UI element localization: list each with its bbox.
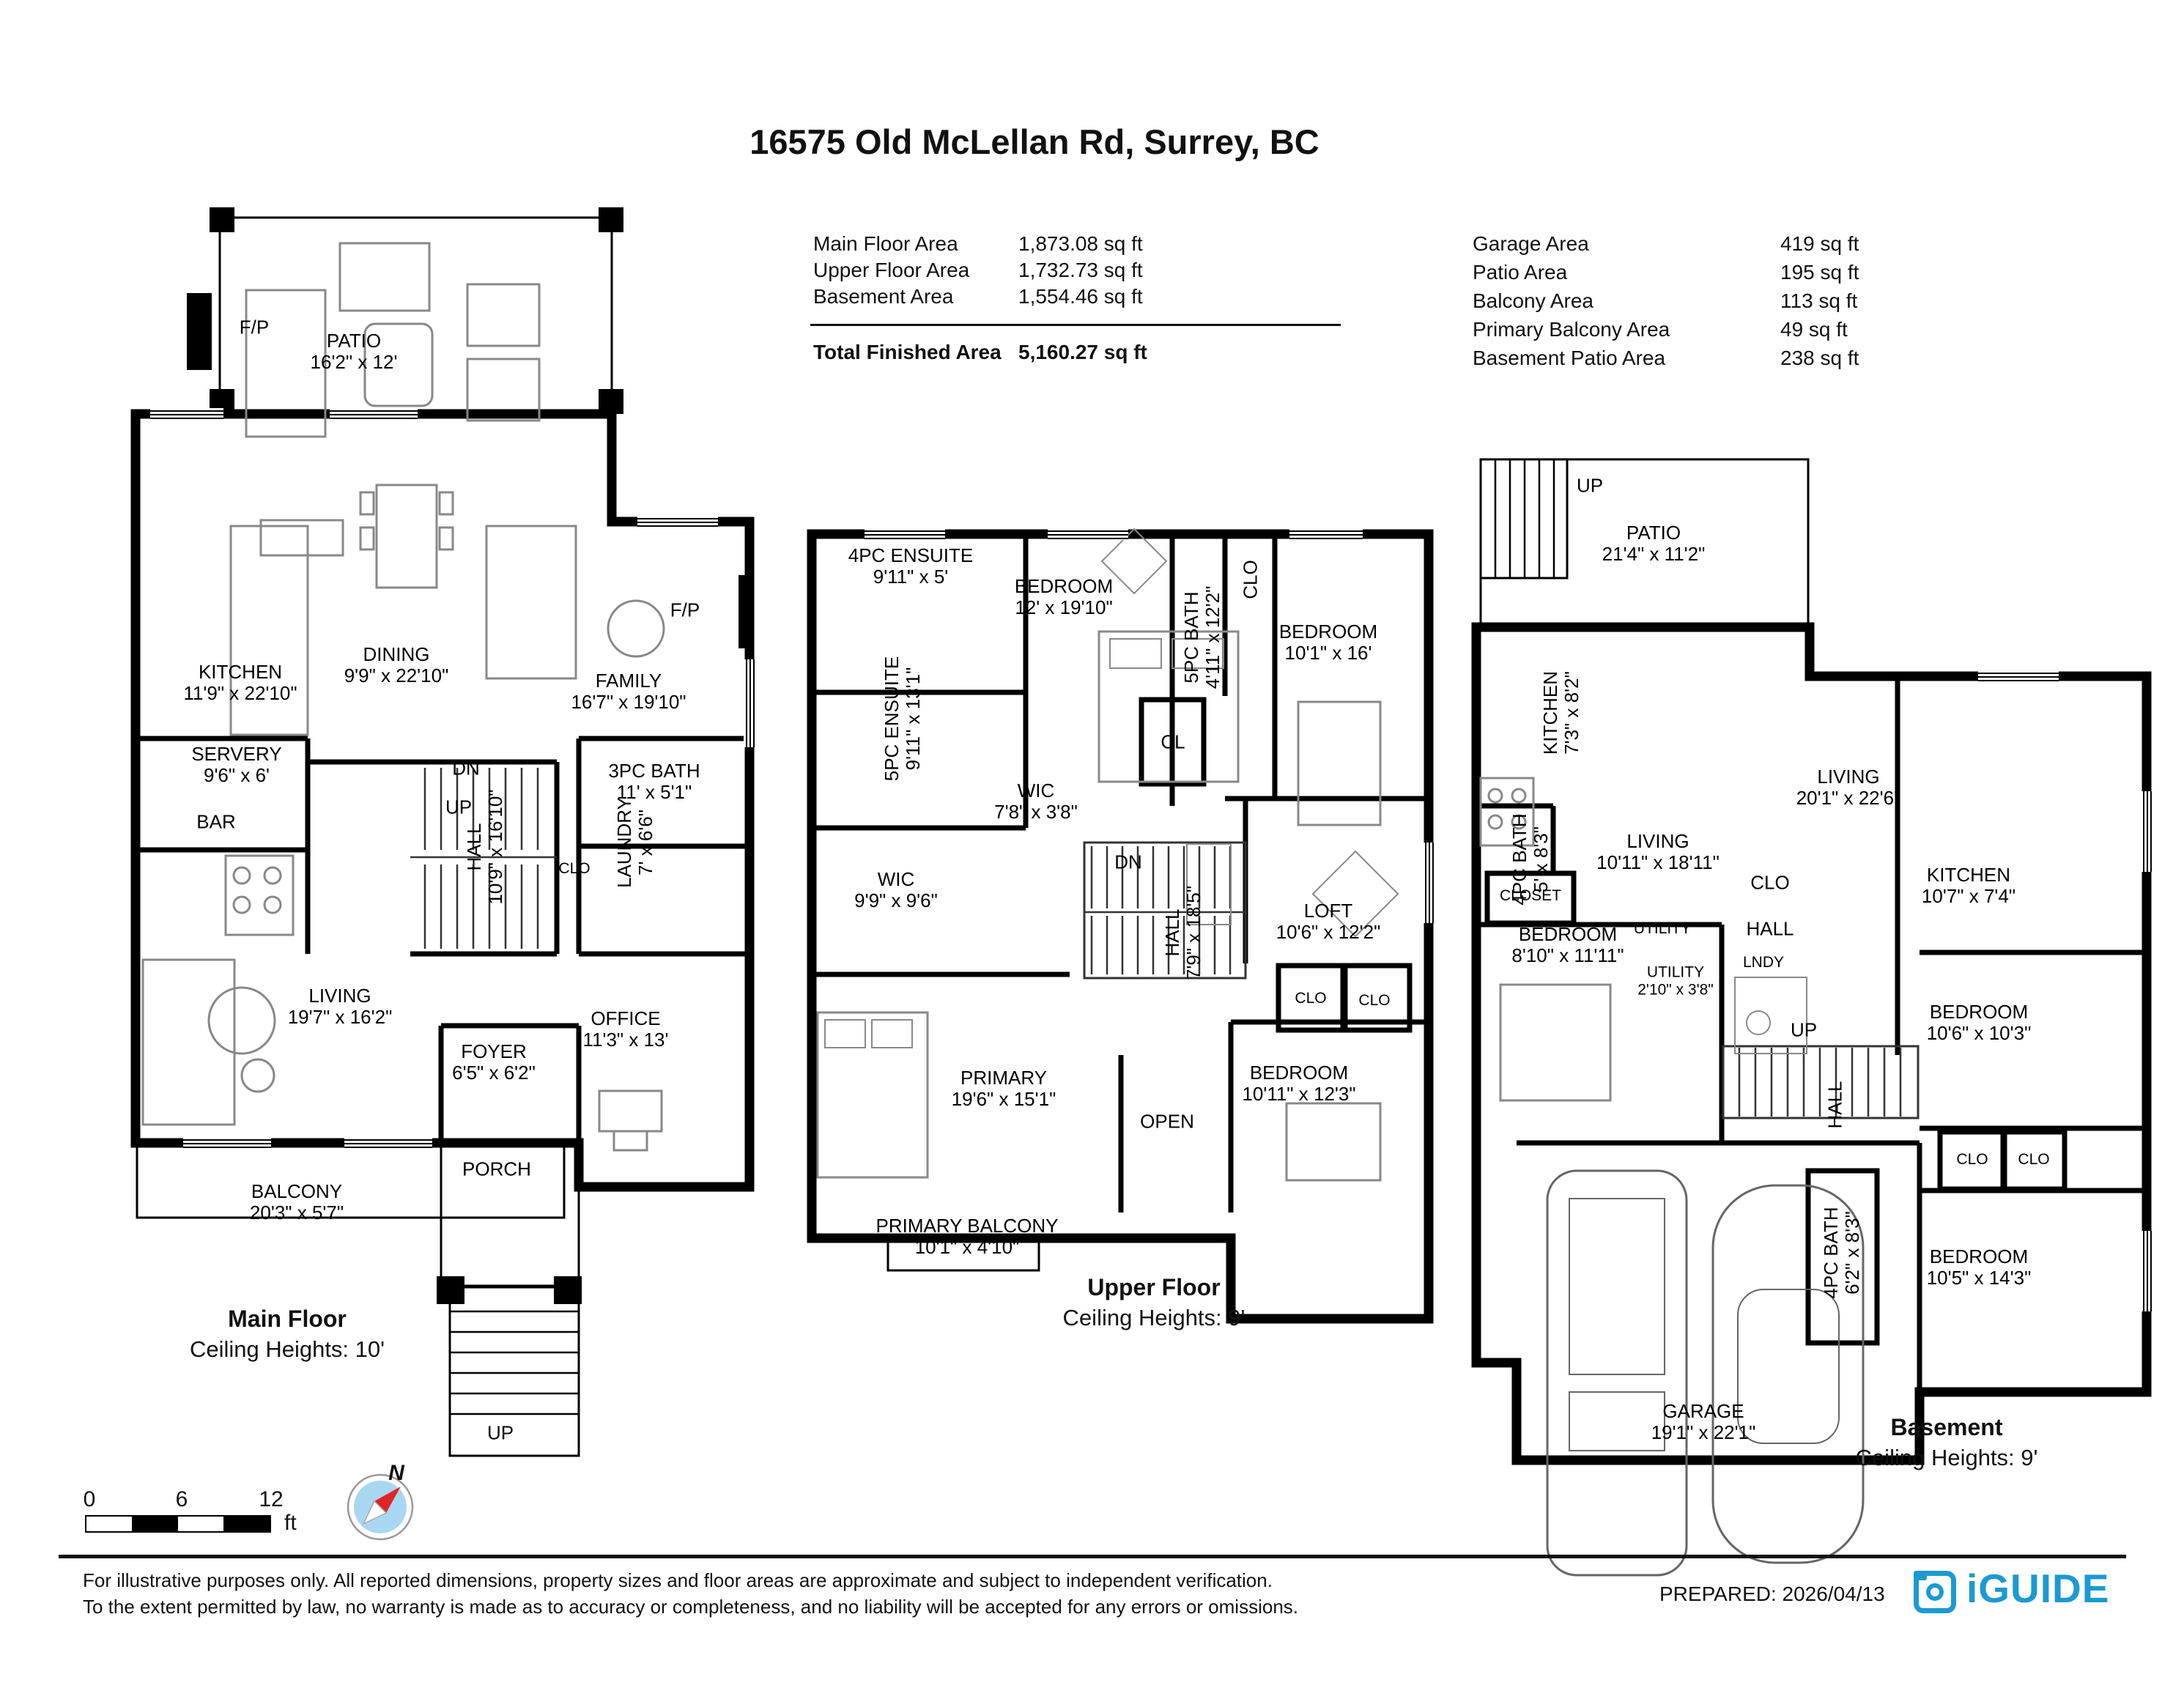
room-name: F/P	[240, 316, 269, 338]
room-loft: LOFT10'6" x 12'2"	[1276, 900, 1381, 943]
floor-caption-upper: Upper Floor Ceiling Heights: 9'	[1063, 1273, 1245, 1333]
room-dims: 9'9" x 22'10"	[344, 665, 449, 686]
room-name: CLO	[558, 860, 590, 877]
room-dims: 4'11" x 12'2"	[1202, 586, 1224, 689]
room-name: CLO	[2018, 1151, 2049, 1168]
room-name: 5PC ENSUITE	[881, 656, 903, 782]
area-value: 419 sq ft	[1780, 232, 1859, 256]
page-title: 16575 Old McLellan Rd, Surrey, BC	[749, 122, 1319, 162]
room-dims: 19'6" x 15'1"	[952, 1089, 1056, 1110]
room-balcony: BALCONY20'3" x 5'7"	[250, 1181, 344, 1224]
room-bedroom: BEDROOM10'6" x 10'3"	[1927, 1002, 2032, 1044]
room-utility: UTILITY2'10" x 3'8"	[1637, 963, 1714, 998]
room-name: FOYER	[461, 1040, 527, 1062]
area-label: Primary Balcony Area	[1473, 318, 1670, 341]
room-dining: DINING9'9" x 22'10"	[344, 644, 449, 686]
room-dims: 6'2" x 8'3"	[1842, 1207, 1863, 1298]
room-dims: 21'4" x 11'2"	[1602, 544, 1706, 565]
floor-caption-main: Main Floor Ceiling Heights: 10'	[190, 1304, 385, 1364]
room-name: F/P	[670, 599, 700, 621]
room-name: CLO	[1956, 1151, 1988, 1168]
area-row-total: Total Finished Area 5,160.27 sq ft	[813, 340, 1002, 365]
area-label: Basement Area	[813, 285, 953, 308]
room-dims: 11'3" x 13'	[583, 1029, 669, 1051]
scale-tick-0: 0	[84, 1487, 96, 1512]
room-name: OFFICE	[591, 1007, 660, 1029]
room-name: LNDY	[1743, 954, 1784, 971]
summary-divider	[810, 324, 1341, 326]
room-name: DN	[1114, 851, 1142, 873]
room-dims: 7'9" x 18'5"	[1183, 886, 1204, 980]
room-name: UTILITY	[1634, 920, 1691, 937]
room-name: LIVING	[1817, 766, 1879, 788]
room-name: LAUNDRY	[613, 797, 635, 888]
room-dims: 10'5" x 14'3"	[1927, 1267, 2032, 1289]
room-bar: BAR	[196, 811, 235, 832]
room-clo: CLO	[558, 860, 590, 878]
room-dims: 10'9" x 16'10"	[485, 789, 506, 904]
scale-tick-12: 12	[259, 1487, 283, 1512]
room-living: LIVING20'1" x 22'6"	[1796, 766, 1901, 809]
floor-name: Main Floor	[190, 1304, 385, 1335]
room-dims: 19'7" x 16'2"	[288, 1007, 393, 1028]
room-name: OPEN	[1140, 1110, 1194, 1132]
iguide-logo-text: iGUIDE	[1966, 1565, 2109, 1612]
room-ensuite-5pc: 5PC ENSUITE9'11" x 13'1"	[881, 656, 924, 782]
room-clo: CLO	[1240, 560, 1261, 599]
room-name: CLO	[1358, 992, 1390, 1009]
room-name: 5PC BATH	[1180, 591, 1202, 683]
room-dims: 7'8" x 3'8"	[994, 802, 1078, 823]
room-dims: 16'7" x 19'10"	[571, 692, 686, 713]
room-bedroom: BEDROOM12' x 19'10"	[1015, 576, 1113, 618]
room-name: PRIMARY BALCONY	[876, 1215, 1058, 1237]
scale-tick-6: 6	[176, 1487, 188, 1512]
room-dims: 10'11" x 12'3"	[1242, 1084, 1355, 1105]
room-name: GARAGE	[1662, 1400, 1744, 1422]
room-name: LIVING	[1626, 830, 1689, 852]
floor-ceiling: Ceiling Heights: 9'	[1856, 1443, 2038, 1473]
room-name: 3PC BATH	[608, 760, 700, 782]
floor-caption-basement: Basement Ceiling Heights: 9'	[1856, 1413, 2038, 1473]
room-dims: 20'3" x 5'7"	[250, 1202, 344, 1224]
footer-divider	[59, 1555, 2126, 1558]
room-living: LIVING10'11" x 18'11"	[1596, 831, 1720, 873]
room-name: BEDROOM	[1930, 1245, 2028, 1267]
area-row-primary-balcony: Primary Balcony Area 49 sq ft	[1473, 317, 1670, 342]
stairs-up-label: UP	[487, 1422, 514, 1443]
prepared-date: PREPARED: 2026/04/13	[1659, 1582, 1885, 1606]
room-dims: 7' x 6'6"	[635, 797, 656, 888]
room-name: KITCHEN	[1539, 671, 1561, 755]
room-name: CL	[1161, 730, 1185, 752]
area-value: 1,873.08 sq ft	[1018, 232, 1143, 256]
room-dims: 10'1" x 16'	[1279, 643, 1377, 664]
area-value: 238 sq ft	[1780, 346, 1859, 371]
room-ensuite-4pc: 4PC ENSUITE9'11" x 5'	[848, 545, 974, 588]
room-hall: HALL	[1824, 1081, 1846, 1128]
room-name: DINING	[363, 643, 430, 665]
floorplan-page: 16575 Old McLellan Rd, Surrey, BC Main F…	[0, 0, 2184, 1688]
compass-north-label: N	[388, 1461, 404, 1486]
area-row-balcony: Balcony Area 113 sq ft	[1473, 289, 1593, 314]
room-name: WIC	[1018, 780, 1055, 802]
area-value: 5,160.27 sq ft	[1018, 340, 1147, 365]
floor-ceiling: Ceiling Heights: 9'	[1063, 1303, 1245, 1333]
room-name: FAMILY	[596, 670, 662, 692]
area-value: 49 sq ft	[1780, 317, 1848, 342]
room-name: UTILITY	[1647, 963, 1704, 980]
room-name: BALCONY	[251, 1180, 342, 1202]
room-name: KITCHEN	[199, 661, 282, 683]
room-patio: PATIO16'2" x 12'	[311, 330, 398, 373]
room-clo: CLO	[1750, 872, 1789, 893]
room-dims: 9'9" x 9'6"	[854, 890, 938, 911]
area-value: 195 sq ft	[1780, 260, 1859, 285]
room-name: UP	[1791, 1018, 1817, 1040]
scale-unit: ft	[284, 1511, 297, 1536]
room-dims: 9'11" x 13'1"	[903, 656, 924, 782]
disclaimer-line-1: For illustrative purposes only. All repo…	[83, 1569, 1273, 1592]
area-row-patio: Patio Area 195 sq ft	[1473, 260, 1567, 285]
room-dims: 9'11" x 5'	[848, 566, 974, 588]
floor-name: Basement	[1856, 1413, 2038, 1443]
room-name: BEDROOM	[1250, 1062, 1348, 1084]
area-value: 113 sq ft	[1780, 289, 1857, 314]
room-porch: PORCH	[462, 1158, 531, 1180]
area-label: Upper Floor Area	[813, 259, 969, 281]
stairs-dn-label: DN	[1114, 851, 1142, 873]
room-dims: 10'7" x 7'4"	[1922, 886, 2015, 907]
room-dims: 7'3" x 8'2"	[1561, 671, 1583, 755]
room-foyer: FOYER6'5" x 6'2"	[452, 1041, 536, 1084]
room-dims: 10'6" x 10'3"	[1927, 1023, 2032, 1044]
room-name: CLOSET	[1500, 887, 1561, 904]
room-fireplace: F/P	[670, 599, 700, 621]
room-wic: WIC9'9" x 9'6"	[854, 869, 938, 911]
room-name: UP	[1577, 474, 1603, 496]
room-clo: CLO	[1358, 992, 1390, 1010]
area-label: Garage Area	[1473, 232, 1589, 255]
room-bedroom: BEDROOM10'11" x 12'3"	[1242, 1062, 1355, 1105]
area-label: Patio Area	[1473, 261, 1567, 284]
area-label: Main Floor Area	[813, 232, 958, 255]
room-name: DN	[452, 757, 480, 779]
room-dims: 20'1" x 22'6"	[1796, 788, 1901, 809]
area-label: Total Finished Area	[813, 341, 1002, 363]
area-row-main: Main Floor Area 1,873.08 sq ft	[813, 232, 958, 256]
room-name: KITCHEN	[1927, 864, 2010, 886]
room-laundry: LAUNDRY7' x 6'6"	[614, 797, 656, 888]
room-name: 4PC BATH	[1820, 1207, 1842, 1298]
room-clo: CLO	[1295, 990, 1326, 1007]
room-garage: GARAGE19'1" x 22'1"	[1651, 1401, 1756, 1443]
stairs-up-label: UP	[1791, 1019, 1817, 1040]
room-bedroom: BEDROOM8'10" x 11'11"	[1511, 924, 1624, 966]
room-dims: 10'6" x 12'2"	[1276, 922, 1381, 943]
room-name: CLO	[1239, 560, 1261, 599]
room-name: CLO	[1295, 990, 1326, 1007]
room-utility: UTILITY	[1634, 920, 1691, 938]
room-name: HALL	[1824, 1081, 1846, 1128]
area-value: 1,732.73 sq ft	[1018, 258, 1143, 283]
room-clo: CLO	[1956, 1151, 1988, 1169]
room-cl: CL	[1161, 731, 1185, 752]
room-family: FAMILY16'7" x 19'10"	[571, 670, 686, 713]
room-dims: 10'1" x 4'10"	[876, 1237, 1058, 1258]
room-name: PATIO	[327, 330, 381, 352]
room-bedroom: BEDROOM10'5" x 14'3"	[1927, 1246, 2032, 1289]
room-name: LOFT	[1304, 900, 1352, 922]
room-dims: 11'9" x 22'10"	[183, 683, 297, 704]
room-name: HALL	[463, 823, 485, 870]
room-dims: 6'5" x 6'2"	[452, 1062, 536, 1084]
room-patio: PATIO21'4" x 11'2"	[1602, 522, 1706, 565]
disclaimer-line-2: To the extent permitted by law, no warra…	[83, 1596, 1298, 1618]
iguide-logo-icon	[1914, 1571, 1956, 1613]
room-name: HALL	[1161, 908, 1183, 956]
room-dims: 9'6" x 6'	[191, 765, 281, 786]
room-dims: 8'10" x 11'11"	[1511, 945, 1624, 966]
room-dims: 2'10" x 3'8"	[1637, 981, 1714, 999]
area-label: Basement Patio Area	[1473, 347, 1665, 369]
room-name: WIC	[878, 868, 915, 890]
room-bedroom: BEDROOM10'1" x 16'	[1279, 621, 1377, 664]
area-value: 1,554.46 sq ft	[1018, 284, 1143, 309]
room-kitchen: KITCHEN10'7" x 7'4"	[1922, 865, 2015, 907]
room-dims: 12' x 19'10"	[1015, 597, 1113, 618]
room-kitchen: KITCHEN7'3" x 8'2"	[1540, 671, 1583, 755]
room-name: PRIMARY	[960, 1067, 1047, 1089]
room-dims: 16'2" x 12'	[311, 352, 398, 373]
room-bath-4pc: 4PC BATH6'2" x 8'3"	[1821, 1207, 1863, 1298]
room-name: HALL	[1746, 917, 1794, 939]
room-name: 4PC ENSUITE	[848, 544, 974, 566]
room-name: BEDROOM	[1279, 621, 1377, 643]
room-hall: HALL10'9" x 16'10"	[464, 789, 506, 904]
room-name: BEDROOM	[1015, 575, 1113, 597]
room-hall: HALL7'9" x 18'5"	[1162, 886, 1204, 980]
room-name: SERVERY	[191, 743, 281, 765]
room-name: BEDROOM	[1930, 1001, 2028, 1023]
area-label: Balcony Area	[1473, 289, 1593, 312]
room-servery: SERVERY9'6" x 6'	[191, 744, 281, 786]
room-name: CLO	[1750, 871, 1789, 893]
room-clo: CLO	[2018, 1151, 2049, 1169]
room-name: BEDROOM	[1519, 923, 1617, 945]
area-row-basement-patio: Basement Patio Area 238 sq ft	[1473, 346, 1665, 371]
stairs-dn-label: DN	[452, 758, 480, 779]
room-bath-5pc: 5PC BATH4'11" x 12'2"	[1181, 586, 1224, 689]
room-wic: WIC7'8" x 3'8"	[994, 780, 1078, 823]
room-name: LIVING	[308, 985, 371, 1007]
area-row-basement: Basement Area 1,554.46 sq ft	[813, 284, 953, 309]
room-closet: CLOSET	[1500, 887, 1561, 905]
room-open: OPEN	[1140, 1111, 1194, 1132]
room-living: LIVING19'7" x 16'2"	[288, 985, 393, 1028]
stairs-up-label: UP	[1577, 475, 1603, 496]
room-dims: 19'1" x 22'1"	[1651, 1422, 1756, 1443]
room-fireplace: F/P	[240, 316, 269, 338]
room-name: UP	[487, 1421, 514, 1443]
area-row-garage: Garage Area 419 sq ft	[1473, 232, 1589, 256]
floor-ceiling: Ceiling Heights: 10'	[190, 1335, 385, 1364]
room-primary: PRIMARY19'6" x 15'1"	[952, 1067, 1056, 1110]
room-kitchen: KITCHEN11'9" x 22'10"	[183, 662, 297, 704]
room-office: OFFICE11'3" x 13'	[583, 1008, 669, 1051]
room-lndy: LNDY	[1743, 954, 1784, 971]
room-primary-balcony: PRIMARY BALCONY10'1" x 4'10"	[876, 1215, 1058, 1258]
room-name: PATIO	[1626, 522, 1681, 544]
room-hall: HALL	[1746, 918, 1794, 939]
area-row-upper: Upper Floor Area 1,732.73 sq ft	[813, 258, 969, 283]
floor-name: Upper Floor	[1063, 1273, 1245, 1303]
room-dims: 10'11" x 18'11"	[1596, 852, 1720, 873]
room-name: BAR	[196, 810, 235, 832]
scale-bar	[85, 1515, 271, 1533]
room-name: PORCH	[462, 1158, 531, 1180]
